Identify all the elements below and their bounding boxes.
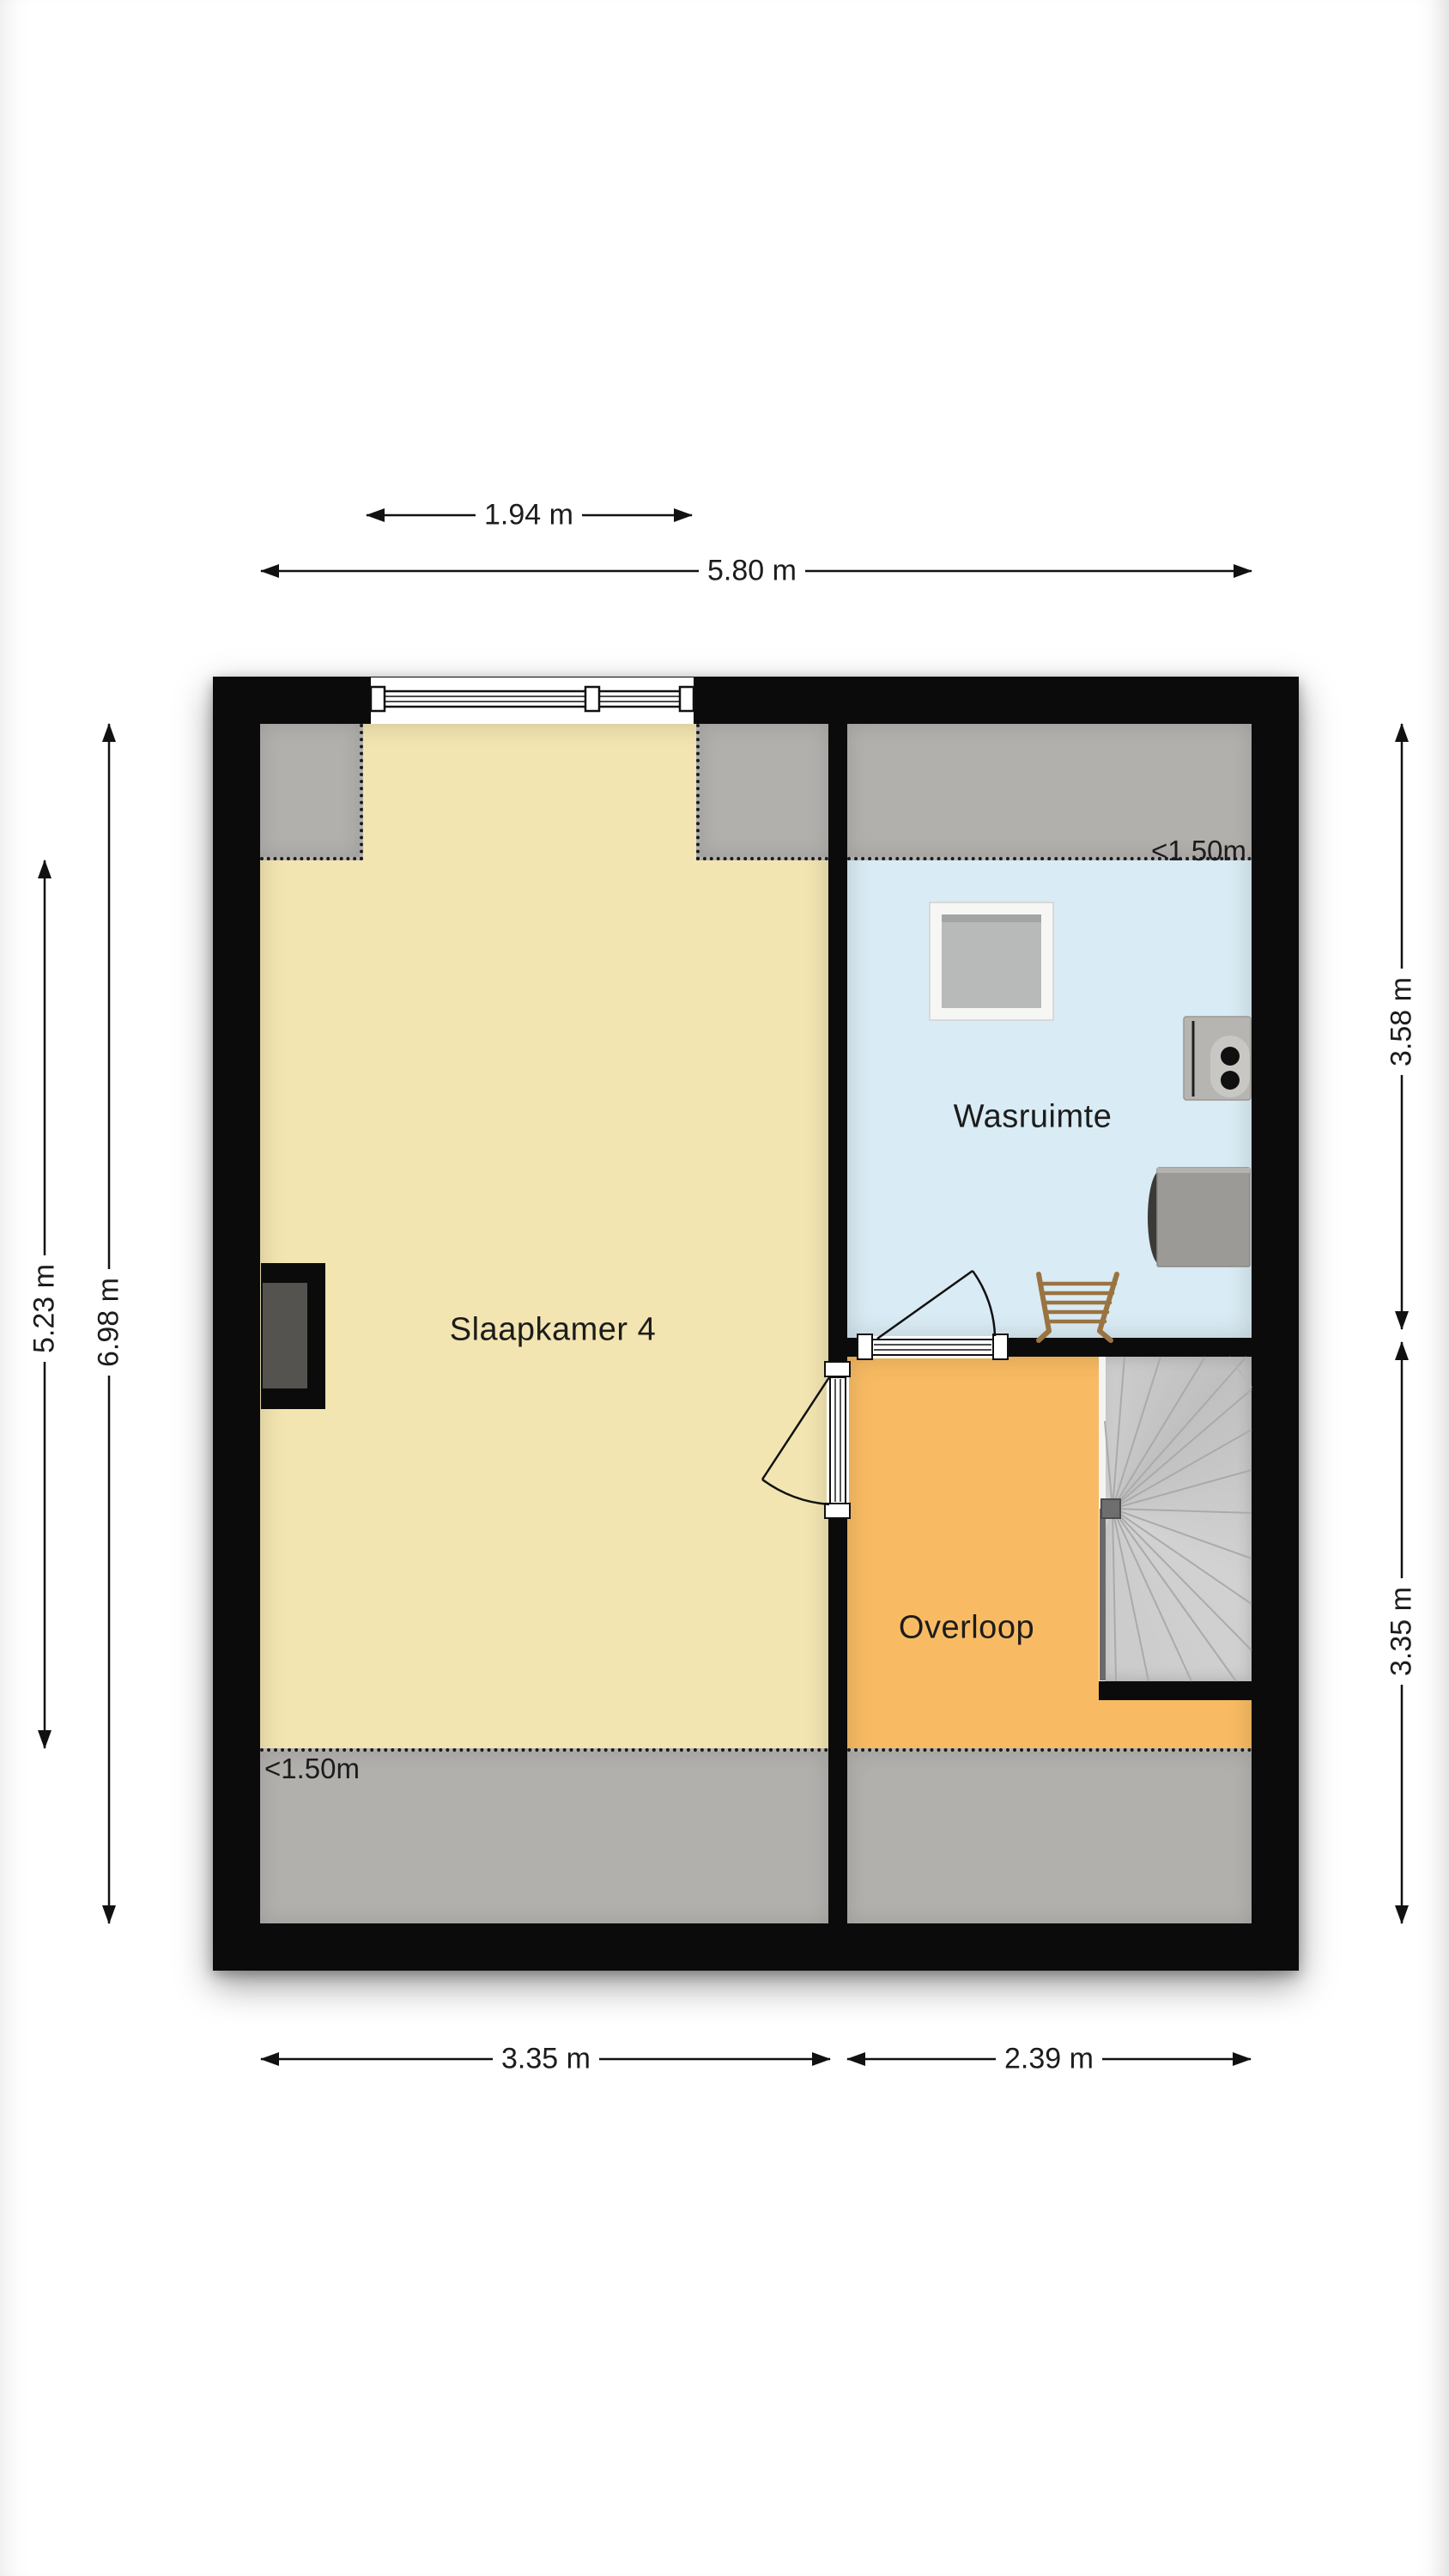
boiler-icon [1184,1017,1251,1100]
dim-left-total: 6.98 m [93,1269,126,1376]
low-ceiling-label-laundry: <1.50m [1151,835,1246,867]
drying-rack-icon [1039,1274,1117,1340]
dim-bottom-left: 3.35 m [493,2043,599,2076]
roof-window-icon [930,902,1053,1020]
room-label-bedroom: Slaapkamer 4 [450,1312,656,1349]
plan-graphics [0,0,1449,2576]
dim-right-lower: 3.35 m [1385,1578,1419,1685]
floorplan-page: Slaapkamer 4 Wasruimte Overloop <1.50m <… [0,0,1449,2576]
dim-top-window: 1.94 m [476,499,582,532]
dim-bottom-right: 2.39 m [996,2043,1102,2076]
dim-right-upper: 3.58 m [1385,969,1419,1075]
dim-left-inner: 5.23 m [28,1255,62,1362]
dimension-arrows [45,515,1402,2059]
room-label-landing: Overloop [899,1610,1034,1647]
door-laundry-icon [858,1271,1008,1359]
staircase-treads [1105,1357,1252,1681]
door-bedroom-icon [762,1362,850,1519]
washing-machine-icon [1148,1168,1250,1267]
dim-top-total: 5.80 m [699,555,805,588]
room-label-laundry: Wasruimte [954,1099,1113,1136]
staircase-handrail [1100,1499,1120,1680]
window-icon [371,677,694,724]
low-ceiling-label-bedroom: <1.50m [264,1753,360,1785]
